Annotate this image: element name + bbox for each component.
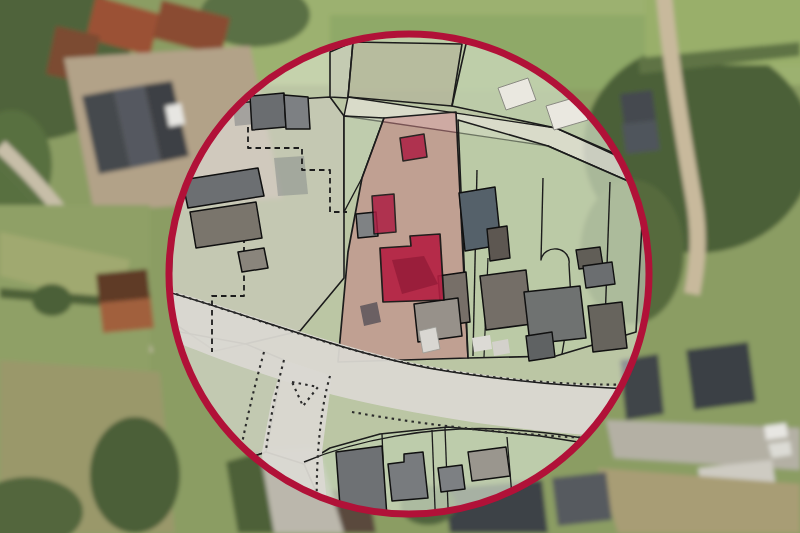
building-south-4 (468, 447, 510, 481)
building-south-3 (438, 465, 465, 492)
car-white-2 (768, 441, 792, 458)
car-white-east-2 (492, 339, 510, 356)
building-house-east-2-wing (526, 332, 555, 361)
car-white-1 (764, 423, 788, 440)
subject-outbuilding-red (400, 134, 427, 161)
car-white-driveway (419, 327, 440, 353)
building-farm-2 (284, 95, 310, 129)
trees-bottom-left (90, 417, 180, 533)
tree-left (32, 284, 72, 316)
aerial-map-canvas[interactable] (0, 0, 800, 533)
shed-right-1 (620, 90, 656, 124)
house-bottom-gray-2 (552, 472, 612, 526)
property-map-view[interactable] (0, 0, 800, 533)
shed-right-2 (622, 120, 660, 154)
field-barn-roof-north (96, 269, 150, 303)
car-white-east-1 (472, 335, 492, 352)
outbuilding-east-2 (583, 262, 615, 288)
building-farm-shed (238, 248, 268, 272)
building-slate-annex (487, 226, 510, 261)
building-farm-1 (250, 93, 286, 130)
parcel-top-field (348, 42, 462, 106)
subject-annex-red (372, 194, 396, 234)
building-house-east-3 (588, 302, 627, 352)
house-right-dark-2 (686, 342, 756, 410)
